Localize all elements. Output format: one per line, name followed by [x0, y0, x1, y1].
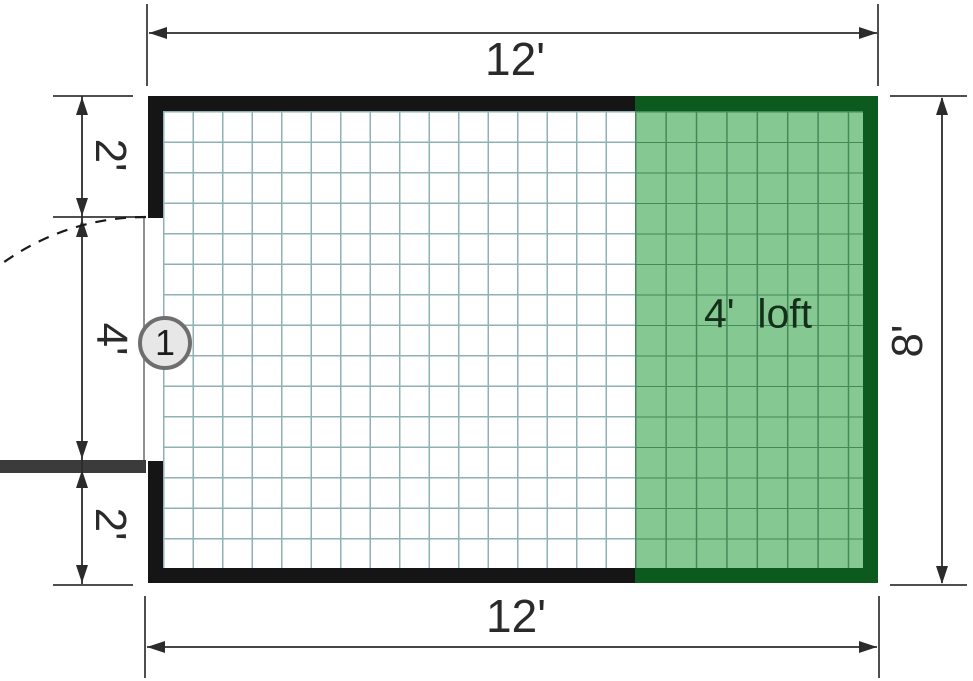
loft-wall-bottom — [635, 568, 878, 583]
wall-left-lower-segment — [148, 461, 163, 583]
door-leaf — [0, 460, 146, 473]
dim-label-bottom-width: 12' — [486, 593, 546, 639]
wall-top — [148, 96, 635, 111]
dim-label-left-top: 2' — [88, 139, 132, 172]
wall-left-upper-segment — [148, 96, 163, 218]
loft-wall-right — [863, 96, 878, 583]
loft-area-grid — [635, 111, 863, 568]
door-swing-arc — [0, 217, 146, 265]
loft-wall-top — [635, 96, 878, 111]
floor-plan-canvas: 12' 12' 8' 2' 4' 2' 4' loft 1 — [0, 0, 973, 681]
dim-label-right-height: 8' — [886, 325, 930, 358]
room-floor-grid — [163, 111, 635, 568]
wall-bottom — [148, 568, 635, 583]
loft-label: 4' loft — [704, 294, 812, 335]
door-number-text: 1 — [155, 322, 175, 364]
dim-label-left-bottom: 2' — [88, 508, 132, 541]
dim-label-left-middle: 4' — [89, 323, 133, 356]
dim-label-top-width: 12' — [485, 36, 545, 82]
door-number-marker: 1 — [138, 316, 192, 370]
